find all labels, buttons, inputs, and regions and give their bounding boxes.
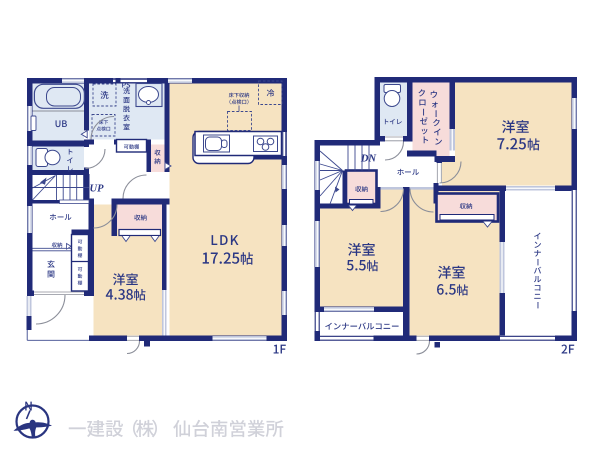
svg-text:DN: DN: [360, 154, 377, 165]
svg-text:UP: UP: [90, 184, 105, 195]
